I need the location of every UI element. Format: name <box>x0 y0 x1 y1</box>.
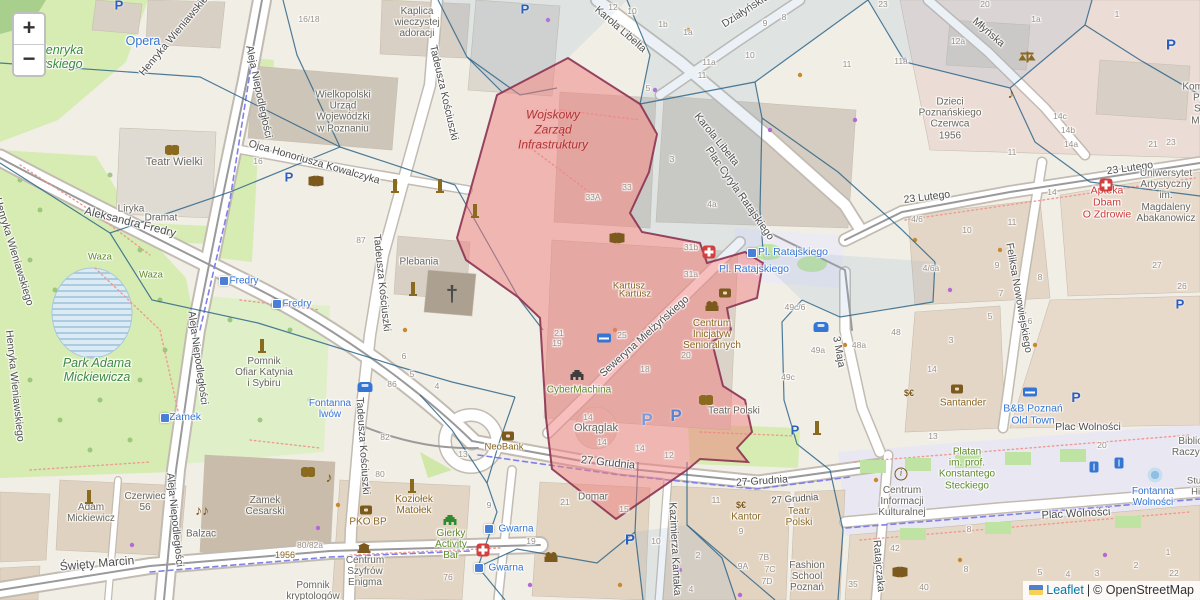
attribution-separator: | <box>1087 583 1090 597</box>
zoom-control: + − <box>12 12 46 77</box>
boundary-line <box>0 63 340 147</box>
boundary-line <box>1085 25 1200 95</box>
zoom-in-button[interactable]: + <box>14 14 44 45</box>
overlay-layer <box>0 0 1200 600</box>
zoom-out-button[interactable]: − <box>14 45 44 75</box>
boundary-line <box>478 397 515 600</box>
boundary-line <box>110 233 515 397</box>
attribution-bar: Leaflet|© OpenStreetMap <box>1023 581 1200 600</box>
boundary-line <box>0 147 340 233</box>
leaflet-link[interactable]: Leaflet <box>1046 583 1084 597</box>
boundary-line <box>420 395 487 483</box>
osm-link[interactable]: © OpenStreetMap <box>1093 583 1194 597</box>
red-region-label: Wojskowy Zarząd Infrastruktury <box>518 108 588 153</box>
boundary-cell <box>635 525 736 600</box>
ukraine-flag-icon <box>1029 585 1043 595</box>
boundary-line <box>1010 88 1200 196</box>
map-canvas[interactable]: Henryka WieniawskiegoHenryka Wieniawskie… <box>0 0 1200 600</box>
boundary-line <box>762 118 935 262</box>
boundary-cell <box>868 0 1092 88</box>
boundary-line <box>830 470 843 600</box>
boundary-line <box>782 300 830 470</box>
boundary-cell <box>763 250 935 317</box>
boundary-line <box>478 532 635 567</box>
boundary-line <box>283 0 340 147</box>
